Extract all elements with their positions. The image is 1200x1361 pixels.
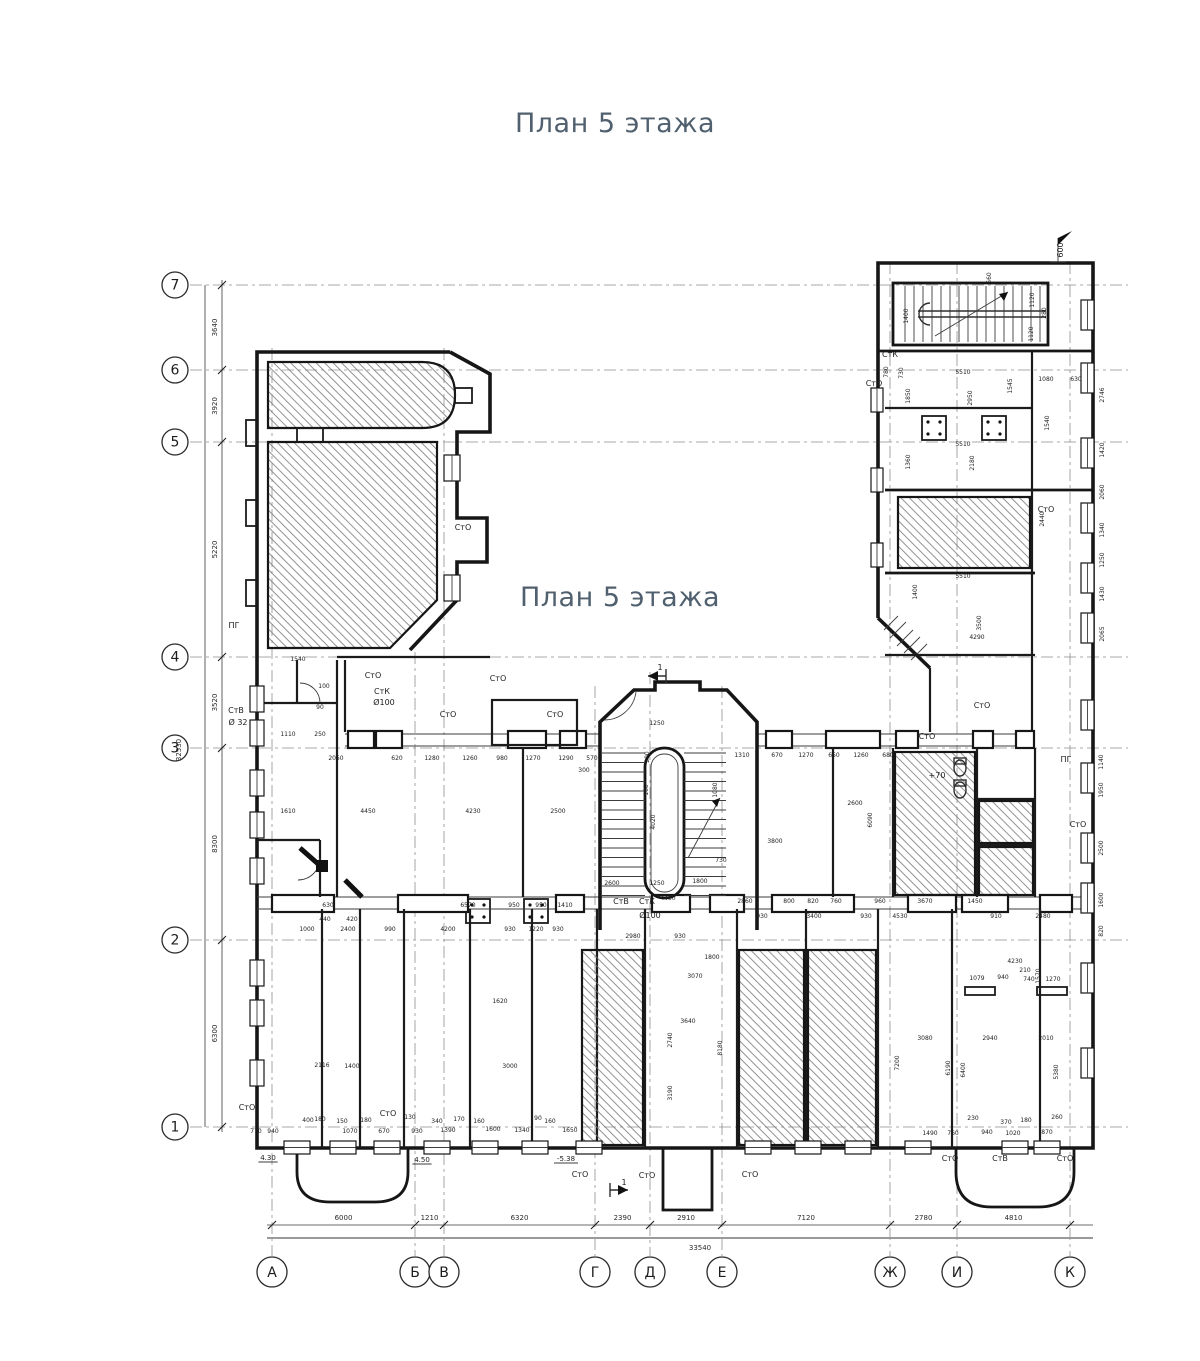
- svg-text:340: 340: [431, 1118, 443, 1125]
- svg-text:930: 930: [411, 1128, 423, 1135]
- svg-text:4200: 4200: [440, 926, 455, 933]
- svg-text:940: 940: [267, 1128, 279, 1135]
- svg-text:5510: 5510: [955, 573, 970, 580]
- svg-text:100: 100: [318, 683, 330, 690]
- svg-text:260: 260: [1051, 1114, 1063, 1121]
- svg-text:130: 130: [404, 1114, 416, 1121]
- svg-text:2910: 2910: [677, 1214, 695, 1222]
- svg-text:200: 200: [644, 751, 651, 763]
- svg-text:180: 180: [360, 1117, 372, 1124]
- svg-text:870: 870: [1041, 1129, 1053, 1136]
- svg-text:1080: 1080: [712, 782, 719, 797]
- svg-text:3640: 3640: [680, 1018, 695, 1025]
- svg-text:780: 780: [883, 366, 890, 378]
- svg-text:2060: 2060: [1099, 484, 1106, 499]
- svg-text:СтО: СтО: [572, 1170, 589, 1179]
- svg-text:620: 620: [391, 755, 403, 762]
- svg-text:Ø100: Ø100: [639, 910, 661, 920]
- svg-text:1610: 1610: [280, 808, 295, 815]
- svg-text:1340: 1340: [514, 1127, 529, 1134]
- svg-text:2600: 2600: [847, 800, 862, 807]
- svg-text:1: 1: [657, 663, 662, 672]
- svg-text:170: 170: [453, 1116, 465, 1123]
- svg-text:6090: 6090: [867, 812, 874, 827]
- svg-text:1490: 1490: [922, 1130, 937, 1137]
- svg-text:1080: 1080: [1038, 376, 1053, 383]
- svg-text:800: 800: [783, 898, 795, 905]
- svg-text:СтО: СтО: [974, 701, 991, 710]
- svg-text:6000: 6000: [335, 1214, 353, 1222]
- svg-text:СтК: СтК: [374, 687, 390, 696]
- svg-text:1650: 1650: [562, 1127, 577, 1134]
- svg-text:Г: Г: [591, 1265, 600, 1281]
- svg-text:СтО: СтО: [490, 674, 507, 683]
- hatched-wc-2: [979, 847, 1033, 895]
- svg-text:730: 730: [898, 367, 905, 379]
- svg-text:1800: 1800: [704, 954, 719, 961]
- svg-text:180: 180: [1020, 1117, 1032, 1124]
- svg-text:1430: 1430: [1099, 586, 1106, 601]
- svg-text:7120: 7120: [797, 1214, 815, 1222]
- svg-text:2400: 2400: [340, 926, 355, 933]
- svg-text:3080: 3080: [917, 1035, 932, 1042]
- svg-text:СтО: СтО: [866, 379, 883, 388]
- hatched-room-b2: [739, 950, 804, 1145]
- svg-text:СтК: СтК: [639, 897, 655, 906]
- svg-text:4230: 4230: [1007, 958, 1022, 965]
- svg-text:СтО: СтО: [1057, 1154, 1074, 1163]
- svg-text:2780: 2780: [915, 1214, 933, 1222]
- svg-text:6320: 6320: [511, 1214, 529, 1222]
- svg-text:630: 630: [1070, 376, 1082, 383]
- svg-text:1079: 1079: [969, 975, 984, 982]
- svg-text:5380: 5380: [1053, 1064, 1060, 1079]
- svg-text:А: А: [267, 1265, 277, 1281]
- hatched-room-b1: [582, 950, 643, 1145]
- svg-text:3640: 3640: [211, 319, 219, 337]
- svg-text:760: 760: [830, 898, 842, 905]
- svg-text:740: 740: [1023, 976, 1035, 983]
- svg-text:940: 940: [981, 1129, 993, 1136]
- porch-center: [663, 1148, 712, 1210]
- svg-text:СтО: СтО: [547, 710, 564, 719]
- svg-text:400: 400: [302, 1117, 314, 1124]
- svg-text:1260: 1260: [853, 752, 868, 759]
- bottom-partitions: [322, 909, 1040, 1148]
- svg-text:1120: 1120: [1028, 326, 1035, 341]
- svg-text:6: 6: [171, 363, 180, 379]
- svg-text:1800: 1800: [692, 878, 707, 885]
- svg-text:СтВ: СтВ: [613, 897, 629, 906]
- hatched-hall-main: [268, 442, 437, 648]
- svg-text:1220: 1220: [528, 926, 543, 933]
- svg-text:1950: 1950: [1098, 782, 1105, 797]
- svg-text:СтО: СтО: [365, 671, 382, 680]
- svg-text:300: 300: [578, 767, 590, 774]
- svg-text:670: 670: [771, 752, 783, 759]
- svg-text:3920: 3920: [211, 397, 219, 415]
- svg-text:930: 930: [504, 926, 516, 933]
- main-stair-bay: [600, 682, 757, 930]
- svg-text:СтО: СтО: [742, 1170, 759, 1179]
- svg-text:4: 4: [171, 650, 180, 666]
- svg-text:670: 670: [378, 1128, 390, 1135]
- svg-text:5510: 5510: [955, 441, 970, 448]
- svg-text:1540: 1540: [1044, 415, 1051, 430]
- svg-text:2500: 2500: [550, 808, 565, 815]
- svg-text:3400: 3400: [806, 913, 821, 920]
- svg-text:Ж: Ж: [882, 1265, 897, 1281]
- svg-text:Е: Е: [718, 1265, 727, 1281]
- svg-text:1280: 1280: [424, 755, 439, 762]
- svg-text:8180: 8180: [717, 1040, 724, 1055]
- svg-text:СтО: СтО: [455, 523, 472, 532]
- svg-text:2: 2: [171, 933, 180, 949]
- svg-text:820: 820: [807, 898, 819, 905]
- svg-text:940: 940: [997, 974, 1009, 981]
- svg-text:4530: 4530: [892, 913, 907, 920]
- svg-text:ПГ: ПГ: [1061, 755, 1072, 764]
- svg-text:2500: 2500: [1098, 840, 1105, 855]
- svg-text:1210: 1210: [421, 1214, 439, 1222]
- svg-text:5220: 5220: [211, 541, 219, 559]
- hatched-wc-1: [979, 801, 1033, 843]
- svg-text:2050: 2050: [328, 755, 343, 762]
- svg-text:3190: 3190: [667, 1085, 674, 1100]
- svg-text:2065: 2065: [1099, 626, 1106, 641]
- svg-text:1400: 1400: [912, 584, 919, 599]
- svg-text:2940: 2940: [982, 1035, 997, 1042]
- svg-text:760: 760: [947, 1130, 959, 1137]
- svg-text:210: 210: [1019, 967, 1031, 974]
- svg-text:90: 90: [534, 1115, 542, 1122]
- hatched-hall-band: [268, 362, 455, 428]
- svg-text:280: 280: [1041, 307, 1048, 319]
- svg-text:960: 960: [874, 898, 886, 905]
- svg-text:1070: 1070: [342, 1128, 357, 1135]
- svg-text:1360: 1360: [905, 454, 912, 469]
- svg-text:2180: 2180: [969, 455, 976, 470]
- svg-text:100: 100: [643, 784, 650, 796]
- svg-text:СтК: СтК: [882, 350, 898, 359]
- svg-text:6300: 6300: [211, 1025, 219, 1043]
- svg-text:1600: 1600: [1098, 892, 1105, 907]
- svg-text:4.50: 4.50: [414, 1156, 430, 1164]
- svg-text:4450: 4450: [660, 895, 675, 902]
- svg-text:630: 630: [322, 902, 334, 909]
- svg-text:4810: 4810: [1005, 1214, 1023, 1222]
- svg-text:930: 930: [860, 913, 872, 920]
- svg-text:2980: 2980: [625, 933, 640, 940]
- svg-text:4020: 4020: [650, 814, 657, 829]
- svg-text:370: 370: [1000, 1119, 1012, 1126]
- svg-text:570: 570: [586, 755, 598, 762]
- svg-text:160: 160: [473, 1118, 485, 1125]
- svg-text:1110: 1110: [280, 731, 295, 738]
- svg-text:3800: 3800: [767, 838, 782, 845]
- svg-text:950: 950: [508, 902, 520, 909]
- svg-text:1850: 1850: [905, 388, 912, 403]
- svg-text:1270: 1270: [798, 752, 813, 759]
- svg-text:1400: 1400: [903, 308, 910, 323]
- drawing-sheet: План 5 этажа План 5 этажа 7654321АБВГДЕЖ…: [0, 0, 1200, 1361]
- svg-text:1620: 1620: [492, 998, 507, 1005]
- svg-text:680: 680: [882, 752, 894, 759]
- svg-text:650: 650: [828, 752, 840, 759]
- svg-text:1140: 1140: [1098, 754, 1105, 769]
- band-notch: [297, 428, 323, 442]
- svg-text:3670: 3670: [917, 898, 932, 905]
- right-wing-chamfer: [878, 618, 930, 668]
- svg-text:32530: 32530: [175, 739, 183, 761]
- svg-text:Ø 32: Ø 32: [228, 717, 247, 727]
- svg-text:СтО: СтО: [440, 710, 457, 719]
- svg-text:3000: 3000: [502, 1063, 517, 1070]
- svg-text:СтВ: СтВ: [228, 706, 244, 715]
- svg-text:СтО: СтО: [919, 732, 936, 741]
- svg-text:2740: 2740: [667, 1032, 674, 1047]
- svg-text:2950: 2950: [967, 390, 974, 405]
- svg-text:420: 420: [346, 916, 358, 923]
- svg-text:СтО: СтО: [942, 1154, 959, 1163]
- svg-text:1260: 1260: [462, 755, 477, 762]
- svg-text:2860: 2860: [737, 898, 752, 905]
- svg-text:1340: 1340: [1099, 522, 1106, 537]
- svg-text:770: 770: [250, 1128, 262, 1135]
- svg-text:СтО: СтО: [239, 1103, 256, 1112]
- svg-text:СтО: СтО: [380, 1109, 397, 1118]
- svg-text:1290: 1290: [558, 755, 573, 762]
- svg-text:1000: 1000: [299, 926, 314, 933]
- svg-text:1540: 1540: [290, 656, 305, 663]
- svg-text:600: 600: [1056, 242, 1065, 257]
- svg-text:1250: 1250: [1099, 552, 1106, 567]
- svg-text:Д: Д: [645, 1265, 656, 1281]
- svg-text:3500: 3500: [976, 615, 983, 630]
- svg-text:5510: 5510: [955, 369, 970, 376]
- porch-left: [297, 1148, 408, 1202]
- svg-text:990: 990: [384, 926, 396, 933]
- svg-text:СтВ: СтВ: [992, 1154, 1008, 1163]
- svg-text:1270: 1270: [525, 755, 540, 762]
- svg-text:В: В: [439, 1265, 449, 1281]
- svg-text:6570: 6570: [460, 902, 475, 909]
- svg-text:4.30: 4.30: [260, 1154, 276, 1162]
- svg-text:930: 930: [674, 933, 686, 940]
- svg-text:1020: 1020: [1005, 1130, 1020, 1137]
- chamfer-stair-treads: [884, 616, 927, 660]
- svg-text:1600: 1600: [485, 1126, 500, 1133]
- svg-text:2480: 2480: [1035, 913, 1050, 920]
- svg-text:8300: 8300: [211, 835, 219, 853]
- svg-text:2600: 2600: [604, 880, 619, 887]
- svg-text:1270: 1270: [1045, 976, 1060, 983]
- svg-text:980: 980: [496, 755, 508, 762]
- svg-text:4450: 4450: [360, 808, 375, 815]
- svg-text:1390: 1390: [440, 1127, 455, 1134]
- svg-text:3070: 3070: [687, 973, 702, 980]
- svg-text:440: 440: [319, 916, 331, 923]
- svg-text:+70: +70: [929, 771, 946, 780]
- svg-text:160: 160: [544, 1118, 556, 1125]
- svg-text:2746: 2746: [1099, 387, 1106, 402]
- svg-text:7: 7: [171, 278, 180, 294]
- svg-text:250: 250: [314, 731, 326, 738]
- svg-text:2116: 2116: [314, 1062, 329, 1069]
- svg-text:820: 820: [1098, 925, 1105, 937]
- svg-text:660: 660: [986, 272, 993, 284]
- svg-text:И: И: [952, 1265, 962, 1281]
- svg-text:1310: 1310: [734, 752, 749, 759]
- svg-text:1250: 1250: [649, 880, 664, 887]
- svg-text:930: 930: [552, 926, 564, 933]
- svg-text:1: 1: [621, 1178, 626, 1187]
- svg-text:230: 230: [967, 1115, 979, 1122]
- svg-text:К: К: [1065, 1265, 1075, 1281]
- svg-text:6400: 6400: [960, 1062, 967, 1077]
- svg-text:1400: 1400: [344, 1063, 359, 1070]
- right-stair: [893, 283, 1048, 345]
- svg-text:4290: 4290: [969, 634, 984, 641]
- svg-text:730: 730: [715, 857, 727, 864]
- svg-text:950: 950: [535, 902, 547, 909]
- svg-text:2440: 2440: [1039, 511, 1046, 526]
- svg-text:1250: 1250: [649, 720, 664, 727]
- wc-cluster-mid: [257, 840, 320, 897]
- svg-text:2010: 2010: [1038, 1035, 1053, 1042]
- svg-text:90: 90: [316, 704, 324, 711]
- svg-text:33540: 33540: [689, 1244, 711, 1252]
- hatched-room-b3: [808, 950, 876, 1145]
- band-window-nub: [455, 388, 472, 403]
- svg-text:ПГ: ПГ: [229, 621, 240, 630]
- svg-text:180: 180: [314, 1116, 326, 1123]
- svg-text:6190: 6190: [945, 1060, 952, 1075]
- svg-text:1545: 1545: [1007, 378, 1014, 393]
- svg-text:910: 910: [990, 913, 1002, 920]
- svg-text:3520: 3520: [211, 694, 219, 712]
- svg-text:Б: Б: [410, 1265, 420, 1281]
- floor-plan-drawing: 7654321АБВГДЕЖИК364039205220352083006300…: [0, 0, 1200, 1361]
- svg-text:5: 5: [171, 435, 180, 451]
- svg-text:1450: 1450: [967, 898, 982, 905]
- svg-text:1410: 1410: [557, 902, 572, 909]
- svg-text:150: 150: [336, 1118, 348, 1125]
- svg-text:СтО: СтО: [1070, 820, 1087, 829]
- svg-text:1570: 1570: [1035, 968, 1042, 983]
- svg-text:СтО: СтО: [639, 1171, 656, 1180]
- svg-text:2390: 2390: [614, 1214, 632, 1222]
- hatched-room-right-wing: [898, 497, 1030, 568]
- svg-text:4230: 4230: [465, 808, 480, 815]
- svg-text:-5.38: -5.38: [557, 1155, 575, 1163]
- svg-text:Ø100: Ø100: [373, 697, 395, 707]
- svg-text:7200: 7200: [894, 1055, 901, 1070]
- svg-text:1120: 1120: [1029, 292, 1036, 307]
- door-arc: [300, 683, 320, 703]
- svg-text:1: 1: [171, 1120, 180, 1136]
- svg-text:1420: 1420: [1099, 442, 1106, 457]
- svg-text:930: 930: [756, 913, 768, 920]
